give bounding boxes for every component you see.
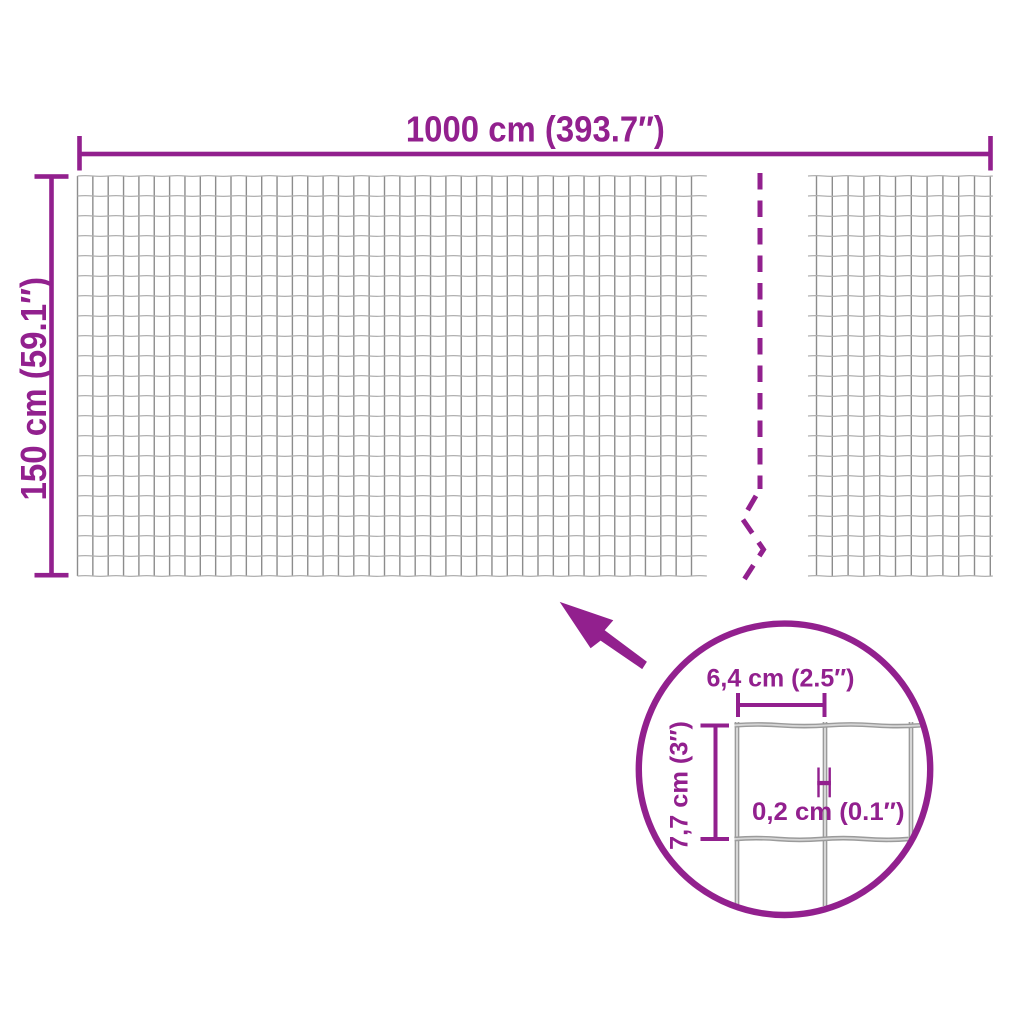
svg-text:1000 cm (393.7″): 1000 cm (393.7″) xyxy=(406,108,665,149)
svg-text:0,2 cm (0.1″): 0,2 cm (0.1″) xyxy=(752,798,905,826)
svg-text:7,7 cm (3″): 7,7 cm (3″) xyxy=(666,721,694,850)
svg-text:150 cm (59.1″): 150 cm (59.1″) xyxy=(13,277,54,501)
svg-text:6,4 cm (2.5″): 6,4 cm (2.5″) xyxy=(707,665,855,693)
